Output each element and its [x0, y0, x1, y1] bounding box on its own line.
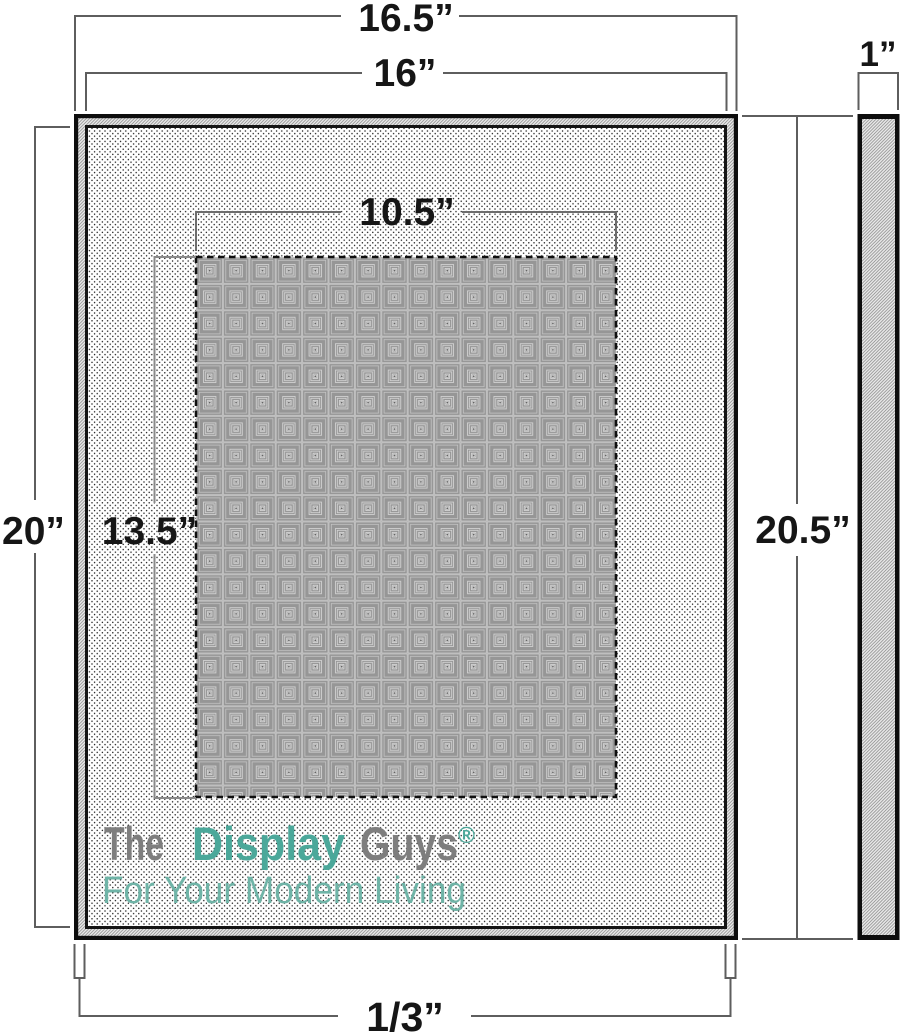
svg-text:®: ® [458, 822, 475, 848]
svg-text:The: The [104, 817, 164, 870]
svg-text:1”: 1” [860, 35, 897, 74]
svg-text:For Your Modern Living: For Your Modern Living [102, 870, 466, 912]
svg-text:1/3”: 1/3” [366, 994, 444, 1036]
svg-text:16.5”: 16.5” [358, 0, 453, 40]
svg-text:Guys: Guys [360, 817, 458, 870]
svg-text:16”: 16” [374, 52, 437, 95]
svg-text:10.5”: 10.5” [359, 191, 454, 234]
svg-text:Display: Display [192, 817, 345, 870]
svg-text:20.5”: 20.5” [755, 509, 850, 552]
svg-text:20”: 20” [2, 510, 65, 553]
svg-text:13.5”: 13.5” [102, 510, 197, 553]
